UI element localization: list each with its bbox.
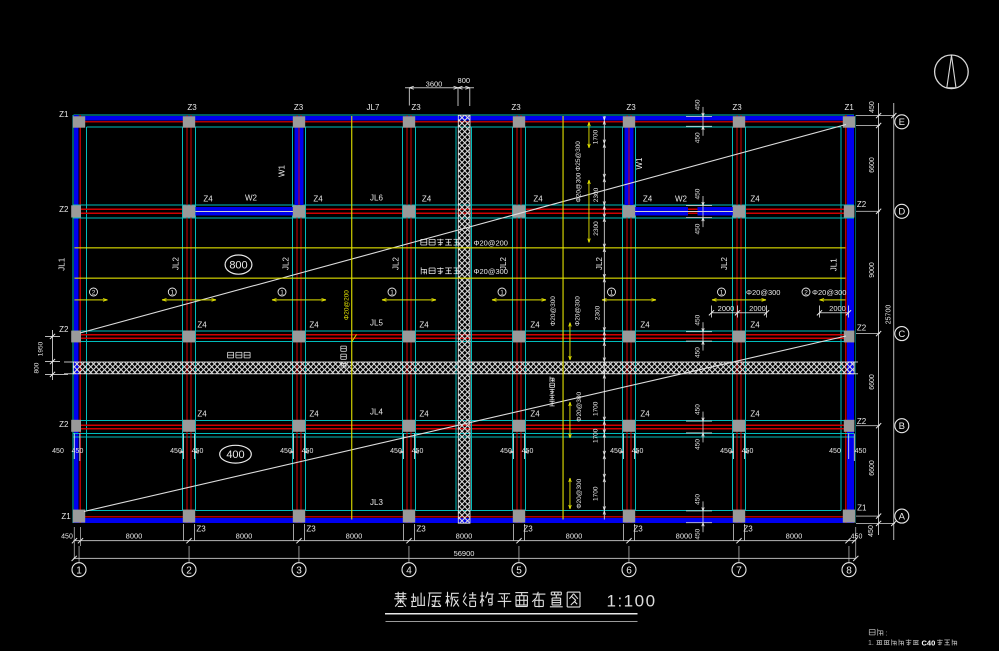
svg-text:Z4: Z4 (197, 409, 207, 418)
svg-text:Z2: Z2 (857, 417, 867, 426)
svg-text:450: 450 (695, 347, 702, 358)
svg-text:C40: C40 (922, 638, 936, 647)
svg-text:JL2: JL2 (499, 257, 508, 270)
svg-text:Φ20@200: Φ20@200 (344, 290, 351, 320)
svg-text:450: 450 (412, 448, 424, 455)
svg-text:Z3: Z3 (187, 103, 197, 112)
svg-text:Z3: Z3 (626, 103, 636, 112)
svg-text:450: 450 (632, 448, 644, 455)
svg-text:450: 450 (72, 448, 84, 455)
svg-text:450: 450 (855, 448, 867, 455)
svg-text:1700: 1700 (593, 401, 600, 416)
svg-text:400: 400 (226, 449, 244, 461)
svg-text:Z1: Z1 (845, 103, 855, 112)
svg-text:4: 4 (406, 565, 412, 576)
svg-text:1:100: 1:100 (607, 592, 657, 611)
svg-text:450: 450 (869, 101, 876, 113)
svg-text:800: 800 (458, 76, 471, 85)
svg-text:D: D (898, 207, 905, 218)
svg-text:Z3: Z3 (416, 525, 426, 534)
svg-text:JL6: JL6 (370, 194, 383, 203)
svg-text:450: 450 (695, 494, 702, 505)
svg-text:1700: 1700 (593, 486, 600, 501)
svg-text:2: 2 (804, 290, 808, 297)
svg-text:6: 6 (626, 565, 632, 576)
svg-text:8000: 8000 (676, 531, 693, 540)
svg-text:450: 450 (695, 99, 702, 110)
svg-text:1: 1 (610, 290, 614, 297)
svg-text:8000: 8000 (786, 531, 803, 540)
svg-text:JL5: JL5 (370, 318, 383, 327)
svg-text:1: 1 (720, 290, 724, 297)
svg-text:Z4: Z4 (750, 320, 760, 329)
svg-text:6600: 6600 (869, 460, 876, 476)
svg-text:450: 450 (868, 525, 875, 537)
svg-text:JL7: JL7 (367, 103, 380, 112)
svg-text:450: 450 (390, 448, 402, 455)
svg-text:JL2: JL2 (171, 257, 180, 270)
svg-text:450: 450 (192, 448, 204, 455)
svg-text:450: 450 (695, 132, 702, 143)
svg-text:25700: 25700 (885, 305, 892, 325)
svg-text:Z4: Z4 (530, 409, 540, 418)
svg-text:JL1: JL1 (830, 258, 839, 271)
svg-text:Φ20@300: Φ20@300 (575, 296, 582, 326)
svg-text:Φ20@300: Φ20@300 (746, 288, 780, 297)
svg-text:2300: 2300 (595, 305, 602, 320)
svg-text:Φ20@300: Φ20@300 (550, 296, 557, 326)
svg-text:450: 450 (61, 533, 73, 540)
svg-text:8000: 8000 (566, 531, 583, 540)
svg-text:Z4: Z4 (203, 194, 213, 203)
svg-text:W1: W1 (635, 157, 644, 170)
svg-text:JL4: JL4 (370, 407, 383, 416)
svg-text:2: 2 (92, 290, 96, 297)
svg-text:Z3: Z3 (523, 525, 533, 534)
svg-text:JL2: JL2 (281, 257, 290, 270)
svg-text:8000: 8000 (236, 531, 253, 540)
svg-text:450: 450 (742, 448, 754, 455)
svg-text:JL3: JL3 (370, 498, 383, 507)
svg-text:450: 450 (610, 448, 622, 455)
svg-text:Z4: Z4 (197, 320, 207, 329)
svg-text:JL2: JL2 (595, 257, 604, 270)
svg-text:Z4: Z4 (533, 194, 543, 203)
svg-text:3600: 3600 (426, 79, 443, 88)
svg-text:Φ20@200: Φ20@200 (474, 239, 508, 248)
svg-text:2000: 2000 (718, 304, 735, 313)
svg-text:Z4: Z4 (530, 320, 540, 329)
svg-text:Z4: Z4 (643, 194, 653, 203)
svg-text:W2: W2 (245, 193, 258, 202)
svg-text:Z4: Z4 (422, 194, 432, 203)
svg-text:2000: 2000 (829, 304, 846, 313)
svg-text:450: 450 (695, 314, 702, 325)
svg-text:Z2: Z2 (59, 420, 69, 429)
svg-text:B: B (899, 421, 905, 432)
svg-text:Φ20@300: Φ20@300 (812, 288, 846, 297)
svg-text:56900: 56900 (454, 549, 475, 558)
svg-text:450: 450 (170, 448, 182, 455)
svg-text:JL1: JL1 (57, 257, 66, 270)
svg-text:Z4: Z4 (750, 409, 760, 418)
svg-text:1: 1 (170, 290, 174, 297)
svg-text:Z3: Z3 (732, 103, 742, 112)
svg-text:5: 5 (516, 565, 522, 576)
svg-text:Φ20@300: Φ20@300 (576, 391, 583, 421)
svg-text:Z1: Z1 (61, 512, 71, 521)
svg-text:W2: W2 (675, 194, 688, 203)
svg-text:Z4: Z4 (419, 320, 429, 329)
svg-text:Z4: Z4 (309, 409, 319, 418)
svg-text:Z1: Z1 (857, 504, 867, 513)
svg-text:Z2: Z2 (857, 200, 867, 209)
svg-text:8000: 8000 (456, 531, 473, 540)
svg-text:450: 450 (695, 528, 702, 539)
svg-text:9000: 9000 (869, 262, 876, 278)
svg-text:450: 450 (851, 533, 863, 540)
svg-text:1: 1 (390, 290, 394, 297)
svg-text:Z4: Z4 (313, 194, 323, 203)
svg-text:Z3: Z3 (411, 103, 421, 112)
svg-text:Z2: Z2 (59, 205, 69, 214)
svg-text:Z2: Z2 (857, 324, 867, 333)
svg-text:A: A (899, 512, 906, 523)
svg-text:450: 450 (52, 448, 64, 455)
svg-text:1: 1 (76, 565, 82, 576)
svg-text:450: 450 (302, 448, 314, 455)
svg-text:7: 7 (736, 565, 742, 576)
svg-text:2000: 2000 (749, 304, 766, 313)
svg-text:450: 450 (500, 448, 512, 455)
svg-text:1950: 1950 (38, 341, 45, 356)
svg-text:Z3: Z3 (196, 525, 206, 534)
svg-text:1: 1 (500, 290, 504, 297)
svg-text:2: 2 (186, 565, 192, 576)
svg-text:3: 3 (296, 565, 302, 576)
svg-text:800: 800 (34, 362, 41, 373)
svg-text:450: 450 (720, 448, 732, 455)
svg-text:Z4: Z4 (640, 409, 650, 418)
svg-text:800: 800 (229, 260, 247, 272)
svg-text:450: 450 (829, 448, 841, 455)
svg-text:Z4: Z4 (309, 320, 319, 329)
svg-text:Φ20@300: Φ20@300 (576, 478, 583, 508)
svg-text:Z4: Z4 (640, 320, 650, 329)
svg-text:Z2: Z2 (59, 325, 69, 334)
svg-text:450: 450 (280, 448, 292, 455)
svg-text:450: 450 (695, 223, 702, 234)
svg-text:1700: 1700 (593, 428, 600, 443)
svg-text:8000: 8000 (126, 531, 143, 540)
svg-text:Z1: Z1 (59, 110, 69, 119)
svg-text:Z3: Z3 (511, 103, 521, 112)
svg-text:Z3: Z3 (306, 525, 316, 534)
svg-text:450: 450 (695, 439, 702, 450)
svg-text:Z4: Z4 (419, 409, 429, 418)
svg-text:450: 450 (695, 188, 702, 199)
svg-text:Z3: Z3 (294, 103, 304, 112)
svg-text:2300: 2300 (593, 221, 600, 236)
svg-text:W1: W1 (277, 164, 286, 177)
svg-text:6600: 6600 (869, 374, 876, 390)
svg-text:Z3: Z3 (633, 525, 643, 534)
svg-text:Φ20@300: Φ20@300 (576, 172, 583, 202)
svg-text:E: E (899, 117, 905, 128)
svg-text:450: 450 (522, 448, 534, 455)
svg-text:C: C (898, 329, 905, 340)
svg-text::: : (886, 631, 888, 638)
svg-text:Φ25@300: Φ25@300 (575, 141, 582, 171)
svg-text:2300: 2300 (593, 187, 600, 202)
svg-text:8000: 8000 (346, 531, 363, 540)
svg-text:8: 8 (846, 565, 852, 576)
svg-text:JL2: JL2 (720, 257, 729, 270)
svg-text:6600: 6600 (869, 157, 876, 173)
svg-text:Z3: Z3 (743, 525, 753, 534)
svg-text:1: 1 (280, 290, 284, 297)
svg-text:Z4: Z4 (750, 194, 760, 203)
svg-text:1.: 1. (868, 640, 874, 647)
svg-text:JL2: JL2 (392, 257, 401, 270)
svg-text:1700: 1700 (593, 129, 600, 144)
svg-text:450: 450 (695, 404, 702, 415)
